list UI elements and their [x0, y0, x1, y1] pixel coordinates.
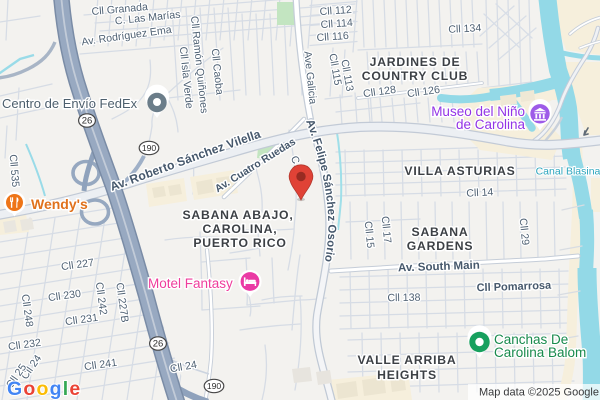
svg-text:Cll 138: Cll 138 — [387, 292, 420, 305]
svg-text:Motel Fantasy: Motel Fantasy — [148, 276, 233, 291]
svg-text:SABANA: SABANA — [412, 225, 469, 239]
svg-text:Canal Blasina: Canal Blasina — [536, 166, 600, 178]
svg-text:VILLA ASTURIAS: VILLA ASTURIAS — [404, 164, 515, 178]
svg-text:COUNTRY CLUB: COUNTRY CLUB — [362, 69, 468, 83]
svg-text:Map data ©2025 Google: Map data ©2025 Google — [479, 387, 599, 399]
svg-text:Google: Google — [7, 378, 81, 400]
svg-text:PUERTO RICO: PUERTO RICO — [193, 236, 286, 250]
svg-text:Cll 116: Cll 116 — [316, 30, 349, 44]
svg-text:HEIGHTS: HEIGHTS — [377, 368, 437, 382]
svg-text:26: 26 — [153, 339, 164, 350]
svg-text:26: 26 — [82, 116, 93, 127]
svg-text:VALLE ARRIBA: VALLE ARRIBA — [358, 353, 457, 367]
svg-text:CAROLINA,: CAROLINA, — [203, 222, 278, 236]
svg-text:Cll 112: Cll 112 — [319, 4, 352, 18]
svg-text:Cll 14: Cll 14 — [466, 186, 494, 199]
svg-text:190: 190 — [207, 381, 222, 391]
svg-text:JARDINES DE: JARDINES DE — [370, 55, 461, 69]
svg-text:Cll 134: Cll 134 — [448, 22, 482, 36]
svg-text:GARDENS: GARDENS — [407, 239, 474, 253]
svg-text:Cll 114: Cll 114 — [320, 17, 353, 31]
svg-text:de Carolina: de Carolina — [456, 117, 526, 132]
svg-text:Centro de Envío FedEx: Centro de Envío FedEx — [2, 96, 138, 111]
svg-text:Wendy's: Wendy's — [31, 196, 88, 212]
svg-text:190: 190 — [142, 143, 157, 153]
svg-text:Carolina Balom: Carolina Balom — [494, 345, 586, 360]
svg-text:SABANA ABAJO,: SABANA ABAJO, — [182, 208, 293, 222]
